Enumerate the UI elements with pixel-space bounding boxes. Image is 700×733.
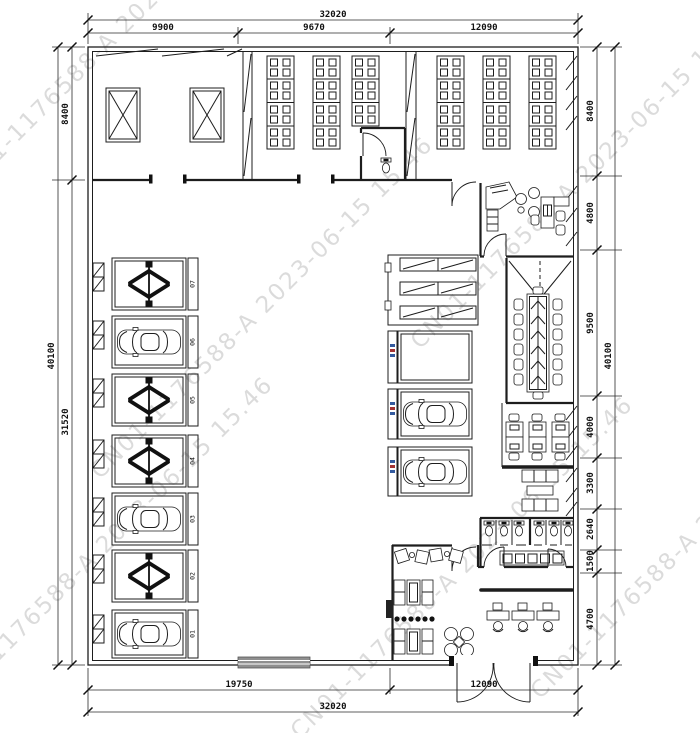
dimension-label: 12090 xyxy=(470,23,497,33)
car-icon xyxy=(118,620,181,649)
dimension-label: 3300 xyxy=(586,472,596,494)
roller-gate xyxy=(238,657,310,668)
bay-number-label: 07 xyxy=(189,280,197,288)
dimension-label: 31520 xyxy=(61,408,71,435)
equipment-box xyxy=(190,88,224,142)
floor-plan-page: CN01-1176588-A 2023-06-15 15.46 CN01-117… xyxy=(0,0,700,733)
dimension-label: 32020 xyxy=(319,10,346,20)
dimension-label: 9900 xyxy=(152,23,174,33)
watermark-text: CN01-1176588-A 2023-06-15 15.46 xyxy=(0,0,299,204)
dimension-label: 12090 xyxy=(470,680,497,690)
service-bay: 01 xyxy=(93,610,198,658)
middle-bays xyxy=(388,331,472,496)
consultant-desk xyxy=(537,603,559,632)
bay-number-label: 01 xyxy=(189,630,197,638)
tool-cabinet xyxy=(93,321,104,349)
lift-icon xyxy=(130,262,168,307)
dimension-label: 40100 xyxy=(47,342,57,369)
bay-number-label: 03 xyxy=(189,515,197,523)
conference-table xyxy=(527,287,549,399)
lounge-room xyxy=(522,470,558,511)
consultant-desk xyxy=(512,603,534,632)
bay-number-label: 05 xyxy=(189,396,197,404)
storage-racks xyxy=(267,56,556,149)
service-bay: 07 xyxy=(93,258,198,310)
car-icon xyxy=(404,458,467,487)
tool-cabinet xyxy=(93,615,104,643)
tool-cabinet xyxy=(93,498,104,526)
dimension-label: 8400 xyxy=(586,100,596,122)
dimension-label: 8400 xyxy=(61,103,71,125)
dimension-label: 2640 xyxy=(586,518,596,540)
bay-number-label: 04 xyxy=(189,457,197,465)
car-icon xyxy=(118,505,181,534)
dimension-label: 40100 xyxy=(604,342,614,369)
dimension-label: 4700 xyxy=(586,608,596,630)
dimension-label: 4800 xyxy=(586,202,596,224)
tool-cabinet xyxy=(93,263,104,291)
dimension-label: 1500 xyxy=(586,550,596,572)
lift-icon xyxy=(130,554,168,599)
car-icon xyxy=(404,400,467,429)
dimension-label: 32020 xyxy=(319,702,346,712)
dimension-label: 9670 xyxy=(303,23,325,33)
sink-counter xyxy=(500,551,564,565)
equipment-box xyxy=(106,88,140,142)
top-rooms xyxy=(92,52,556,207)
floor-plan: CN01-1176588-A 2023-06-15 15.46 CN01-117… xyxy=(0,0,700,733)
table-group xyxy=(394,629,433,654)
dimension-label: 19750 xyxy=(225,680,252,690)
bay-number-label: 02 xyxy=(189,572,197,580)
dimension-label: 4000 xyxy=(586,416,596,438)
round-table-set xyxy=(445,628,474,657)
dimension-label: 9500 xyxy=(586,312,596,334)
tool-cabinet xyxy=(93,379,104,407)
staff-office xyxy=(502,403,574,467)
consultant-desk xyxy=(487,603,509,632)
bay-number-label: 06 xyxy=(189,338,197,346)
service-bay: 06 xyxy=(93,316,198,368)
side-door xyxy=(386,600,393,618)
car-icon xyxy=(118,328,181,357)
table-group xyxy=(394,580,433,605)
waiting-chairs xyxy=(394,548,463,564)
entrance-door xyxy=(449,655,538,702)
conference-room xyxy=(506,258,574,403)
